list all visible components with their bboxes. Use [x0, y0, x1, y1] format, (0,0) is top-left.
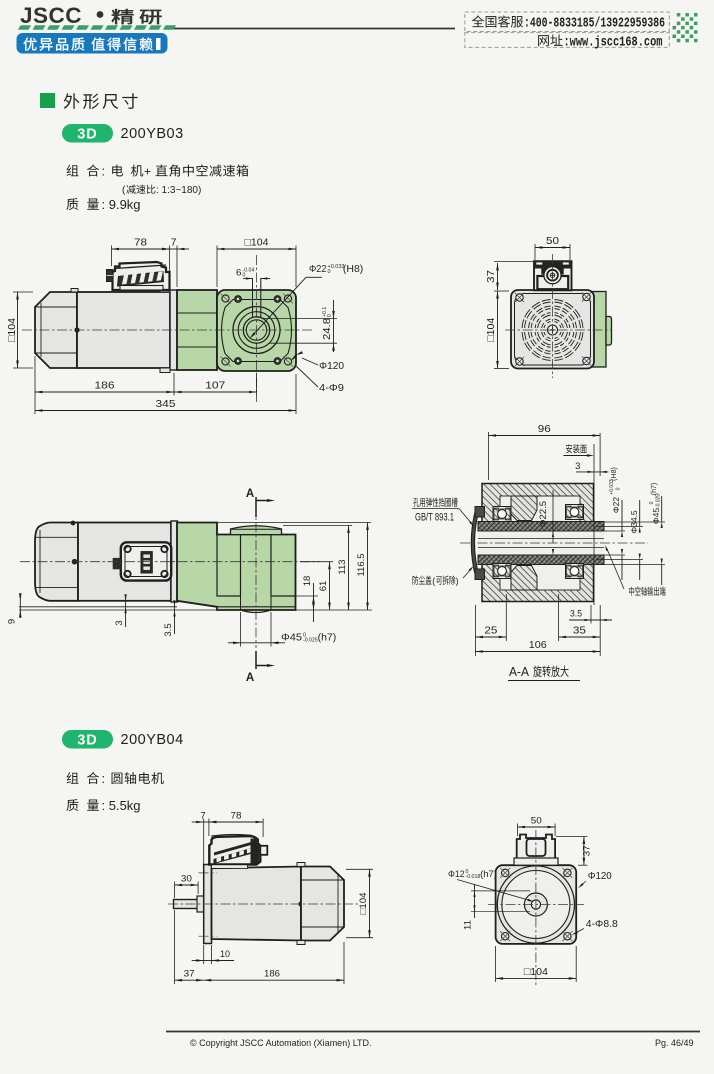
svg-text:Pg. 46/49: Pg. 46/49 — [655, 1038, 694, 1048]
svg-text:4-Φ8.8: 4-Φ8.8 — [586, 918, 618, 930]
svg-text:-0.018: -0.018 — [466, 874, 481, 880]
svg-text:50: 50 — [531, 816, 542, 827]
svg-text:(h7): (h7) — [480, 869, 497, 880]
svg-text:Φ12: Φ12 — [448, 869, 465, 880]
svg-text:Φ120: Φ120 — [588, 870, 612, 882]
svg-text:□104: □104 — [524, 966, 548, 978]
svg-text:37: 37 — [582, 845, 593, 856]
svg-text:11: 11 — [463, 920, 474, 930]
svg-text:© Copyright JSCC Automation (X: © Copyright JSCC Automation (Xiamen) LTD… — [190, 1038, 372, 1048]
